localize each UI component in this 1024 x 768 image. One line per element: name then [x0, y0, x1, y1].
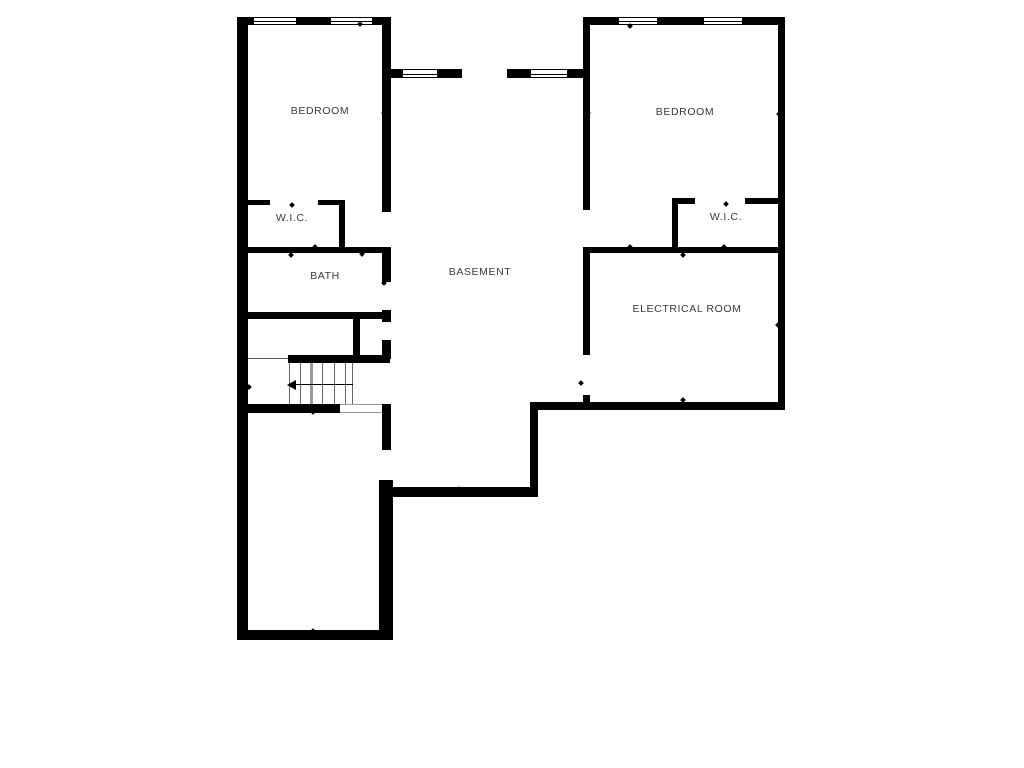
wall-tick	[680, 252, 686, 258]
wall-top-right-bedroom	[583, 17, 785, 25]
room-label-bedroom-left: BEDROOM	[291, 105, 349, 117]
wall-step-vertical	[530, 402, 538, 497]
room-label-wic-left: W.I.C.	[276, 212, 308, 224]
wall-stair-top	[288, 355, 390, 363]
wall-closet-divider	[353, 312, 360, 355]
wall-stair-bottom	[237, 404, 340, 413]
door-tick	[289, 202, 295, 208]
wall-bath-bottom	[237, 312, 391, 319]
door-opening-edge	[340, 412, 382, 413]
wall-left-exterior	[237, 17, 248, 640]
room-label-basement: BASEMENT	[449, 266, 512, 278]
door-opening-edge	[340, 404, 382, 405]
room-label-electrical: ELECTRICAL ROOM	[633, 303, 742, 315]
wall-right-lower-room	[379, 480, 393, 640]
window	[402, 69, 438, 78]
window	[618, 17, 658, 25]
room-label-bath: BATH	[310, 270, 340, 282]
door-tick	[723, 201, 729, 207]
stairs-arrow-icon	[287, 380, 296, 390]
wall-electrical-left-b	[583, 395, 590, 403]
wall-wic-left-right	[339, 200, 345, 253]
wall-wic-left-top-a	[237, 200, 270, 205]
wall-right-exterior	[778, 17, 785, 410]
window	[330, 17, 373, 25]
door-tick	[578, 380, 584, 386]
wall-wic-right-left	[672, 198, 678, 253]
wall-left-bedroom-right-e	[382, 404, 391, 450]
wall-bottom-electrical	[530, 402, 785, 410]
wall-wic-right-top-b	[745, 198, 780, 204]
wall-tick	[288, 252, 294, 258]
stair-edge-line	[248, 358, 288, 359]
window	[703, 17, 743, 25]
window	[253, 17, 297, 25]
wall-electrical-left-a	[583, 253, 590, 355]
stair-arrow-shaft	[295, 384, 353, 385]
room-label-wic-right: W.I.C.	[710, 211, 742, 223]
floor-plan: BEDROOM BEDROOM W.I.C. W.I.C. BATH BASEM…	[0, 0, 1024, 768]
wall-mid-right	[583, 247, 785, 253]
window	[530, 69, 568, 78]
room-label-bedroom-right: BEDROOM	[656, 106, 714, 118]
wall-wic-right-top-a	[672, 198, 695, 204]
